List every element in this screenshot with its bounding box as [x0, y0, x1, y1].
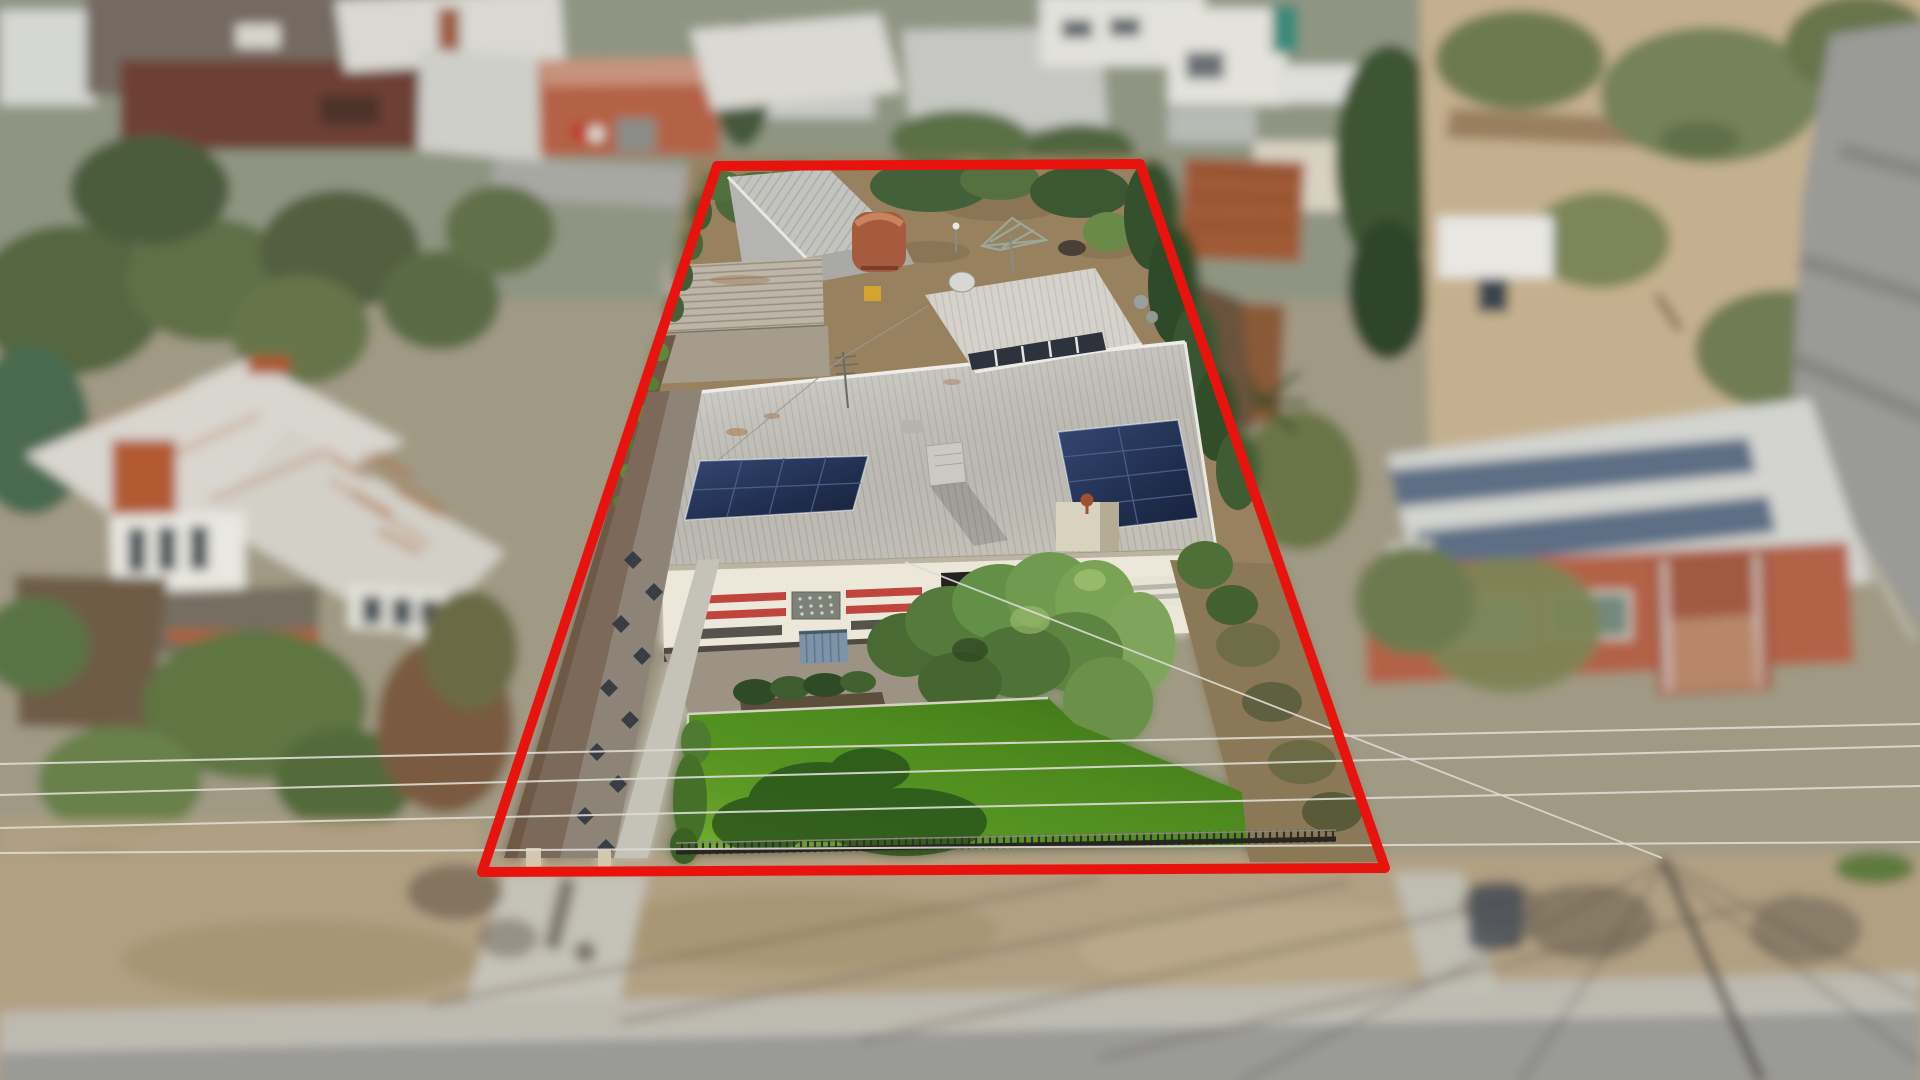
- green-bin: [1272, 5, 1298, 53]
- porch: [1652, 550, 1772, 696]
- street-zone: [0, 852, 1920, 1080]
- tall-conifer-2: [1348, 220, 1428, 360]
- aerial-photo: [0, 0, 1920, 1080]
- orange-brick-house: [538, 58, 720, 156]
- roof-far-left: [0, 10, 95, 105]
- grass-tuft: [1835, 852, 1915, 884]
- parked-car: [1478, 278, 1508, 312]
- tree-shadow: [1524, 884, 1656, 960]
- aerial-photo-canvas: [0, 0, 1920, 1080]
- brick-chimney-small: [248, 356, 290, 374]
